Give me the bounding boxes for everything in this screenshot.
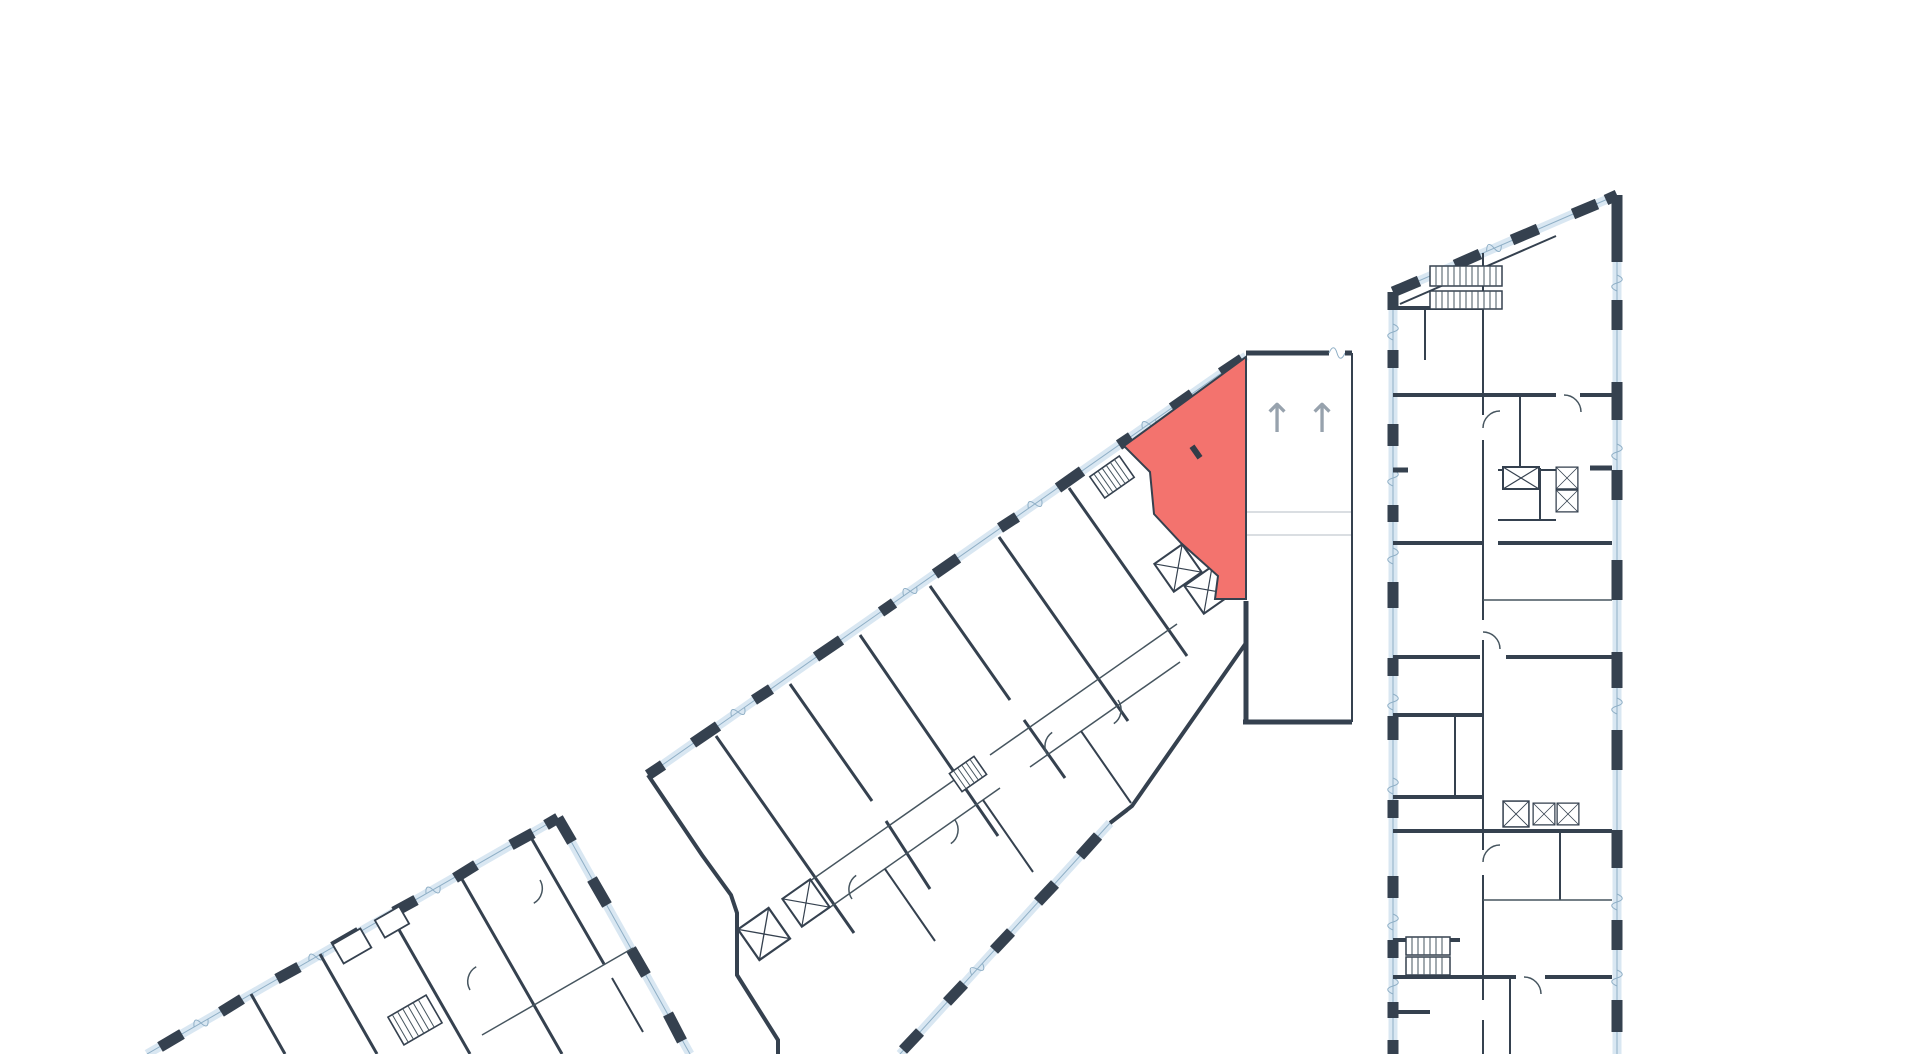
up-arrow-icon: ↑ <box>1260 396 1294 442</box>
building-bottom-left <box>147 818 690 1054</box>
elevator-icon <box>1533 803 1555 825</box>
elevator-icon <box>1503 467 1539 489</box>
building-right <box>1388 195 1623 1054</box>
floorplan-canvas: ↑ ↑ <box>0 0 1920 1054</box>
elevator-icon <box>1556 490 1578 512</box>
floorplan-svg: ↑ ↑ <box>0 0 1920 1054</box>
elevator-icon <box>1557 803 1579 825</box>
building-middle: ↑ ↑ <box>648 348 1352 1054</box>
elevator-icon <box>1503 801 1529 827</box>
building-c-body <box>1393 195 1617 1054</box>
up-arrow-icon: ↑ <box>1305 396 1339 442</box>
elevator-icon <box>1556 467 1578 489</box>
